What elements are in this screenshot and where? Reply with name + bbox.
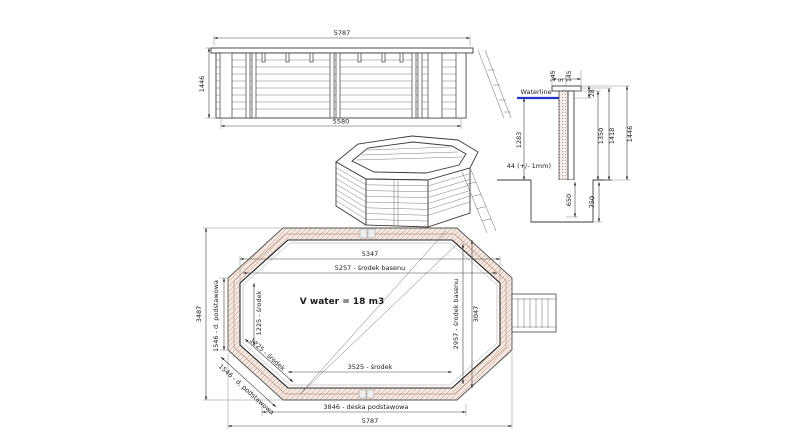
dim-cap-right: 145	[566, 70, 573, 82]
dim-inner-width: 5347	[362, 250, 379, 258]
dim-center-length: 2957 - środek basenu	[452, 279, 460, 350]
dim-elevation-width-bottom: 5580	[333, 118, 350, 126]
dim-top-to-waterline: 28	[589, 89, 596, 97]
dim-height-total: 1446	[626, 126, 634, 143]
dim-side-board: 1546 - d. podstawowa	[212, 280, 220, 352]
dim-side-center: 1225 - środek	[255, 290, 263, 335]
dim-cap-gap: 5	[558, 78, 565, 82]
isometric-view	[336, 136, 496, 233]
dim-base-board: 3846 - deska podstawowa	[324, 403, 409, 411]
dim-embed-depth: 650	[565, 194, 573, 206]
volume-note: V water = 18 m3	[300, 297, 384, 307]
ladder-elevation	[478, 50, 511, 118]
dim-trench-depth: 750	[588, 196, 596, 208]
dim-elevation-width-top: 5787	[334, 29, 351, 37]
plan-ladder	[512, 294, 556, 332]
section-top-cap	[552, 86, 581, 91]
pool-technical-drawing: 5787 1446 5580 145 5 145 Waterline 28 12…	[0, 0, 794, 446]
section-wall-planks	[559, 91, 568, 180]
dim-overall-height: 3487	[195, 306, 203, 323]
dim-center-width: 5257 - środek basenu	[335, 264, 406, 272]
dim-overall-width: 5787	[362, 417, 379, 425]
wall-section-view: 145 5 145 Waterline 28 1283 1350 1418 14…	[497, 70, 634, 222]
dim-inner-length: 3047	[472, 306, 480, 323]
wall-thickness-note: 44 (+/- 1mm)	[507, 162, 551, 170]
dim-elevation-height: 1446	[198, 76, 206, 93]
waterline-label: Waterline	[521, 88, 552, 96]
dim-bottom-center: 3525 - środek	[348, 363, 393, 371]
plan-view: 5347 5257 - środek basenu V water = 18 m…	[195, 228, 556, 429]
front-elevation-view: 5787 1446 5580	[198, 29, 511, 129]
dim-height-mid: 1418	[608, 128, 616, 145]
dim-cap-left: 145	[550, 70, 557, 82]
drawing-canvas: 5787 1446 5580 145 5 145 Waterline 28 12…	[0, 0, 794, 446]
dim-water-depth: 1283	[515, 132, 523, 149]
section-wall-outer	[568, 91, 574, 180]
top-rim	[211, 48, 473, 53]
dim-height-inner: 1350	[597, 128, 605, 145]
